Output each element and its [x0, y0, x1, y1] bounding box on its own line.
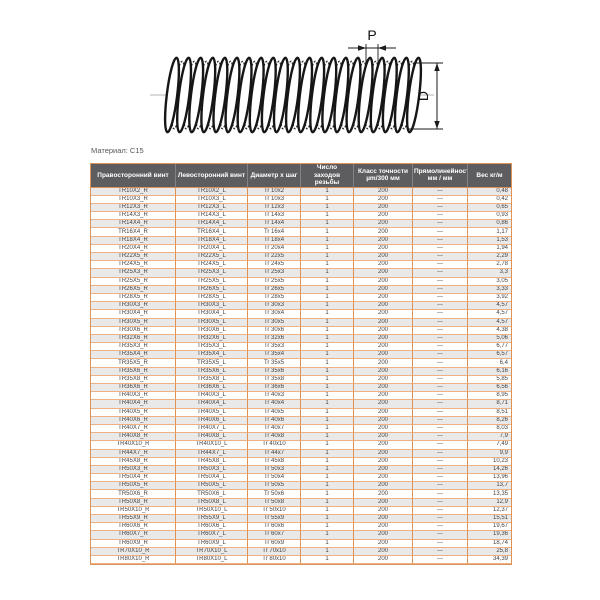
- table-cell: 1: [301, 278, 354, 286]
- table-cell: Tr 30x4: [248, 310, 301, 318]
- table-cell: 10,23: [468, 458, 511, 466]
- table-cell: TR10X3_R: [91, 196, 176, 204]
- table-cell: 1: [301, 327, 354, 335]
- table-cell: TR25X3_R: [91, 269, 176, 277]
- table-row: TR44X7_RTR44X7_LTr 44x71200---9,9: [91, 450, 511, 458]
- column-header: Класс точности µm/300 мм: [354, 164, 413, 188]
- table-cell: 200: [354, 433, 413, 441]
- table-cell: TR30X6_L: [176, 327, 248, 335]
- table-cell: 1: [301, 548, 354, 556]
- table-cell: 200: [354, 499, 413, 507]
- table-cell: 34,39: [468, 556, 511, 564]
- table-cell: ---: [413, 458, 468, 466]
- table-row: TR40X8_RTR40X8_LTr 40x81200---7,9: [91, 433, 511, 441]
- table-cell: 1: [301, 523, 354, 531]
- table-cell: ---: [413, 335, 468, 343]
- table-cell: Tr 35x4: [248, 351, 301, 359]
- table-cell: 0,93: [468, 212, 511, 220]
- table-cell: 1: [301, 458, 354, 466]
- table-cell: Tr 25x3: [248, 269, 301, 277]
- table-row: TR45X8_RTR45X8_LTr 45x81200---10,23: [91, 458, 511, 466]
- table-cell: 200: [354, 335, 413, 343]
- table-cell: ---: [413, 450, 468, 458]
- table-cell: Tr 50x8: [248, 499, 301, 507]
- table-cell: 1: [301, 310, 354, 318]
- table-cell: ---: [413, 245, 468, 253]
- table-cell: 200: [354, 458, 413, 466]
- table-cell: ---: [413, 237, 468, 245]
- table-cell: Tr 50x10: [248, 507, 301, 515]
- table-cell: 1: [301, 507, 354, 515]
- table-row: TR20X4_RTR20X4_LTr 20x41200---1,94: [91, 245, 511, 253]
- table-cell: Tr 40x6: [248, 417, 301, 425]
- table-cell: TR50X10_R: [91, 507, 176, 515]
- table-cell: 1,17: [468, 228, 511, 236]
- table-cell: TR55X9_R: [91, 515, 176, 523]
- table-cell: TR60X6_L: [176, 523, 248, 531]
- table-cell: 200: [354, 474, 413, 482]
- table-cell: 12,9: [468, 499, 511, 507]
- table-cell: Tr 40x4: [248, 400, 301, 408]
- table-cell: 200: [354, 384, 413, 392]
- pitch-arrow-right-icon: [378, 45, 386, 50]
- table-cell: 200: [354, 237, 413, 245]
- table-cell: 1: [301, 343, 354, 351]
- table-cell: TR50X10_L: [176, 507, 248, 515]
- table-cell: TR14X3_R: [91, 212, 176, 220]
- table-cell: 12,37: [468, 507, 511, 515]
- table-cell: Tr 40x8: [248, 433, 301, 441]
- table-row: TR35X6_RTR35X6_LTr 35x61200---6,16: [91, 368, 511, 376]
- table-cell: 0,48: [468, 188, 511, 196]
- diameter-arrow-bottom-icon: [434, 121, 439, 129]
- table-cell: 200: [354, 220, 413, 228]
- table-cell: Tr 60x9: [248, 540, 301, 548]
- table-cell: 1: [301, 376, 354, 384]
- table-cell: TR35X6_R: [91, 368, 176, 376]
- table-cell: TR40X8_R: [91, 433, 176, 441]
- table-row: TR32X6_RTR32X6_LTr 32x61200---5,06: [91, 335, 511, 343]
- table-cell: Tr 16x4: [248, 228, 301, 236]
- table-cell: Tr 40x10: [248, 441, 301, 449]
- table-cell: TR30X5_R: [91, 319, 176, 327]
- table-cell: 1: [301, 409, 354, 417]
- table-cell: 1: [301, 441, 354, 449]
- table-row: TR24X5_RTR24X5_LTr 24x51200---2,78: [91, 261, 511, 269]
- table-cell: 200: [354, 392, 413, 400]
- table-cell: ---: [413, 327, 468, 335]
- table-cell: 8,51: [468, 409, 511, 417]
- table-cell: Tr 30x5: [248, 319, 301, 327]
- table-cell: Tr 14x4: [248, 220, 301, 228]
- table-cell: TR60X6_R: [91, 523, 176, 531]
- table-cell: ---: [413, 376, 468, 384]
- table-cell: 1,53: [468, 237, 511, 245]
- table-cell: 1: [301, 359, 354, 367]
- table-cell: 200: [354, 294, 413, 302]
- table-cell: 1: [301, 261, 354, 269]
- table-cell: 200: [354, 286, 413, 294]
- table-cell: ---: [413, 425, 468, 433]
- table-cell: 200: [354, 531, 413, 539]
- table-cell: 1: [301, 228, 354, 236]
- table-cell: 1: [301, 515, 354, 523]
- table-cell: TR44X7_L: [176, 450, 248, 458]
- table-cell: ---: [413, 278, 468, 286]
- table-cell: ---: [413, 515, 468, 523]
- table-cell: 1: [301, 245, 354, 253]
- table-cell: 4,38: [468, 327, 511, 335]
- table-row: TR26X5_RTR26X5_LTr 26x51200---3,33: [91, 286, 511, 294]
- table-cell: Tr 20x4: [248, 245, 301, 253]
- table-cell: TR40X3_L: [176, 392, 248, 400]
- table-cell: TR20X4_L: [176, 245, 248, 253]
- table-row: TR80X10_RTR80X10_LTr 80x101200---34,39: [91, 556, 511, 564]
- table-cell: TR50X8_R: [91, 499, 176, 507]
- table-cell: Tr 50x5: [248, 482, 301, 490]
- table-cell: Tr 50x3: [248, 466, 301, 474]
- table-cell: 8,95: [468, 392, 511, 400]
- table-cell: 4,57: [468, 310, 511, 318]
- table-cell: Tr 50x4: [248, 474, 301, 482]
- material-note: Материал: C15: [91, 146, 144, 155]
- table-cell: 1: [301, 196, 354, 204]
- table-cell: 3,3: [468, 269, 511, 277]
- table-cell: 1: [301, 474, 354, 482]
- table-cell: TR32X6_L: [176, 335, 248, 343]
- table-cell: 3,05: [468, 278, 511, 286]
- table-cell: 6,16: [468, 368, 511, 376]
- table-cell: TR55X9_L: [176, 515, 248, 523]
- table-cell: ---: [413, 319, 468, 327]
- table-cell: 1: [301, 482, 354, 490]
- table-cell: Tr 30x3: [248, 302, 301, 310]
- table-cell: TR30X4_R: [91, 310, 176, 318]
- table-cell: ---: [413, 294, 468, 302]
- table-cell: TR22X5_L: [176, 253, 248, 261]
- table-cell: TR30X4_L: [176, 310, 248, 318]
- table-cell: TR70X10_L: [176, 548, 248, 556]
- table-cell: 9,9: [468, 450, 511, 458]
- table-cell: TR26X5_R: [91, 286, 176, 294]
- table-cell: Tr 30x6: [248, 327, 301, 335]
- table-cell: ---: [413, 368, 468, 376]
- table-cell: TR32X6_R: [91, 335, 176, 343]
- table-cell: Tr 24x5: [248, 261, 301, 269]
- table-cell: TR35X5_R: [91, 359, 176, 367]
- table-cell: ---: [413, 441, 468, 449]
- pitch-label: P: [367, 27, 376, 43]
- table-cell: Tr 36x6: [248, 384, 301, 392]
- table-row: TR35X3_RTR35X3_LTr 35x31200---6,77: [91, 343, 511, 351]
- table-cell: 1: [301, 499, 354, 507]
- table-cell: TR35X3_L: [176, 343, 248, 351]
- table-cell: TR35X4_R: [91, 351, 176, 359]
- table-cell: 1,94: [468, 245, 511, 253]
- table-cell: 25,8: [468, 548, 511, 556]
- table-cell: TR40X6_L: [176, 417, 248, 425]
- table-cell: 200: [354, 228, 413, 236]
- table-cell: TR50X6_R: [91, 490, 176, 498]
- table-cell: ---: [413, 212, 468, 220]
- table-cell: TR28X5_L: [176, 294, 248, 302]
- table-row: TR12X3_RTR12X3_LTr 12x31200---0,65: [91, 204, 511, 212]
- table-cell: 8,26: [468, 417, 511, 425]
- table-cell: TR25X5_L: [176, 278, 248, 286]
- table-cell: 13,96: [468, 474, 511, 482]
- table-cell: Tr 35x5: [248, 359, 301, 367]
- table-cell: 19,67: [468, 523, 511, 531]
- table-row: TR25X5_RTR25X5_LTr 25x51200---3,05: [91, 278, 511, 286]
- table-cell: 8,03: [468, 425, 511, 433]
- table-cell: ---: [413, 540, 468, 548]
- table-cell: 1: [301, 417, 354, 425]
- table-row: TR50X10_RTR50X10_LTr 50x101200---12,37: [91, 507, 511, 515]
- column-header: Прямолинейность мм / мм: [413, 164, 468, 188]
- table-cell: 200: [354, 310, 413, 318]
- table-cell: TR12X3_R: [91, 204, 176, 212]
- table-cell: Tr 12x3: [248, 204, 301, 212]
- column-header: Число заходов резьбы: [301, 164, 354, 188]
- table-cell: 1: [301, 286, 354, 294]
- table-cell: TR50X5_R: [91, 482, 176, 490]
- table-cell: TR14X3_L: [176, 212, 248, 220]
- table-cell: 1: [301, 335, 354, 343]
- table-cell: 3,33: [468, 286, 511, 294]
- table-cell: TR40X3_R: [91, 392, 176, 400]
- table-cell: TR35X5_L: [176, 359, 248, 367]
- table-cell: 200: [354, 400, 413, 408]
- table-cell: ---: [413, 400, 468, 408]
- table-cell: 200: [354, 450, 413, 458]
- table-row: TR60X6_RTR60X6_LTr 60x61200---19,67: [91, 523, 511, 531]
- column-header: Правосторонний винт: [91, 164, 176, 188]
- table-cell: TR40X4_R: [91, 400, 176, 408]
- table-cell: TR35X6_L: [176, 368, 248, 376]
- table-cell: ---: [413, 310, 468, 318]
- table-cell: ---: [413, 188, 468, 196]
- table-row: TR30X5_RTR30X5_LTr 30x51200---4,57: [91, 319, 511, 327]
- table-cell: Tr 44x7: [248, 450, 301, 458]
- table-row: TR60X9_RTR60X9_LTr 60x91200---18,74: [91, 540, 511, 548]
- table-cell: ---: [413, 343, 468, 351]
- table-cell: 6,4: [468, 359, 511, 367]
- table-row: TR30X4_RTR30X4_LTr 30x41200---4,57: [91, 310, 511, 318]
- table-cell: 14,26: [468, 466, 511, 474]
- table-cell: TR40X5_L: [176, 409, 248, 417]
- table-cell: ---: [413, 204, 468, 212]
- thread-size-table-wrap: Правосторонний винтЛевосторонний винтДиа…: [90, 163, 510, 565]
- table-cell: 7,49: [468, 441, 511, 449]
- table-cell: 200: [354, 343, 413, 351]
- table-cell: 200: [354, 507, 413, 515]
- table-cell: ---: [413, 482, 468, 490]
- table-cell: ---: [413, 474, 468, 482]
- table-cell: ---: [413, 384, 468, 392]
- table-cell: 200: [354, 278, 413, 286]
- table-cell: TR60X7_R: [91, 531, 176, 539]
- table-cell: 1: [301, 253, 354, 261]
- table-cell: 1: [301, 269, 354, 277]
- table-cell: TR18X4_R: [91, 237, 176, 245]
- table-row: TR35X8_RTR35X8_LTr 35x81200---5,85: [91, 376, 511, 384]
- table-cell: TR50X4_L: [176, 474, 248, 482]
- table-cell: TR18X4_L: [176, 237, 248, 245]
- table-cell: 5,06: [468, 335, 511, 343]
- table-cell: 0,65: [468, 204, 511, 212]
- thread-drawing: P D: [0, 0, 600, 160]
- table-cell: 1: [301, 531, 354, 539]
- table-cell: TR60X9_L: [176, 540, 248, 548]
- table-cell: TR25X5_R: [91, 278, 176, 286]
- table-cell: TR40X6_R: [91, 417, 176, 425]
- table-cell: TR70X10_R: [91, 548, 176, 556]
- table-cell: 200: [354, 196, 413, 204]
- table-cell: 200: [354, 368, 413, 376]
- table-cell: ---: [413, 548, 468, 556]
- column-header: Левосторонний винт: [176, 164, 248, 188]
- table-row: TR35X4_RTR35X4_LTr 35x41200---6,57: [91, 351, 511, 359]
- table-cell: Tr 26x5: [248, 286, 301, 294]
- table-row: TR14X4_RTR14X4_LTr 14x41200---0,86: [91, 220, 511, 228]
- table-cell: 13,35: [468, 490, 511, 498]
- table-row: TR55X9_RTR55X9_LTr 55x91200---15,51: [91, 515, 511, 523]
- table-cell: TR45X8_L: [176, 458, 248, 466]
- table-cell: TR40X4_L: [176, 400, 248, 408]
- table-cell: ---: [413, 392, 468, 400]
- table-cell: TR40X7_L: [176, 425, 248, 433]
- table-cell: Tr 14x3: [248, 212, 301, 220]
- table-cell: 2,78: [468, 261, 511, 269]
- table-cell: TR40X8_L: [176, 433, 248, 441]
- table-cell: TR45X8_R: [91, 458, 176, 466]
- table-row: TR70X10_RTR70X10_LTr 70x101200---25,8: [91, 548, 511, 556]
- table-cell: TR30X5_L: [176, 319, 248, 327]
- table-cell: 6,57: [468, 351, 511, 359]
- diameter-label: D: [415, 91, 431, 101]
- table-cell: 19,36: [468, 531, 511, 539]
- table-cell: 1: [301, 490, 354, 498]
- table-cell: 0,86: [468, 220, 511, 228]
- table-body: TR10X2_RTR10X2_LTr 10x21200---0,48TR10X3…: [91, 188, 511, 565]
- table-cell: 1: [301, 400, 354, 408]
- table-cell: TR60X9_R: [91, 540, 176, 548]
- table-cell: Tr 18x4: [248, 237, 301, 245]
- table-cell: TR50X6_L: [176, 490, 248, 498]
- table-row: TR10X2_RTR10X2_LTr 10x21200---0,48: [91, 188, 511, 196]
- table-row: TR14X3_RTR14X3_LTr 14x31200---0,93: [91, 212, 511, 220]
- table-cell: ---: [413, 417, 468, 425]
- table-cell: ---: [413, 499, 468, 507]
- table-row: TR10X3_RTR10X3_LTr 10x31200---0,42: [91, 196, 511, 204]
- table-cell: 4,57: [468, 319, 511, 327]
- table-cell: TR28X5_R: [91, 294, 176, 302]
- table-cell: 1: [301, 237, 354, 245]
- table-row: TR40X6_RTR40X6_LTr 40x61200---8,26: [91, 417, 511, 425]
- table-cell: ---: [413, 196, 468, 204]
- table-cell: TR50X5_L: [176, 482, 248, 490]
- table-cell: ---: [413, 507, 468, 515]
- table-cell: 200: [354, 359, 413, 367]
- table-cell: 13,7: [468, 482, 511, 490]
- thread-profile: [162, 57, 423, 133]
- table-row: TR50X6_RTR50X6_LTr 50x61200---13,35: [91, 490, 511, 498]
- table-row: TR40X4_RTR40X4_LTr 40x41200---8,71: [91, 400, 511, 408]
- table-row: TR25X3_RTR25X3_LTr 25x31200---3,3: [91, 269, 511, 277]
- table-cell: Tr 45x8: [248, 458, 301, 466]
- table-cell: TR40X5_R: [91, 409, 176, 417]
- table-row: TR50X3_RTR50X3_LTr 50x31200---14,26: [91, 466, 511, 474]
- table-cell: TR80X10_R: [91, 556, 176, 564]
- table-cell: 200: [354, 319, 413, 327]
- table-cell: 1: [301, 368, 354, 376]
- table-row: TR35X5_RTR35X5_LTr 35x51200---6,4: [91, 359, 511, 367]
- table-cell: 200: [354, 548, 413, 556]
- table-cell: 200: [354, 466, 413, 474]
- table-row: TR28X5_RTR28X5_LTr 28x51200---3,92: [91, 294, 511, 302]
- table-cell: TR50X8_L: [176, 499, 248, 507]
- table-cell: 200: [354, 523, 413, 531]
- table-cell: 200: [354, 441, 413, 449]
- table-cell: ---: [413, 351, 468, 359]
- table-cell: 200: [354, 556, 413, 564]
- table-cell: TR14X4_R: [91, 220, 176, 228]
- table-cell: Tr 32x6: [248, 335, 301, 343]
- table-cell: Tr 35x6: [248, 368, 301, 376]
- table-cell: 1: [301, 220, 354, 228]
- column-header: Диаметр х шаг: [248, 164, 301, 188]
- table-cell: TR35X4_L: [176, 351, 248, 359]
- table-cell: Tr 35x8: [248, 376, 301, 384]
- table-cell: ---: [413, 409, 468, 417]
- table-cell: TR35X8_R: [91, 376, 176, 384]
- table-cell: 1: [301, 450, 354, 458]
- table-cell: 1: [301, 188, 354, 196]
- table-cell: TR10X3_L: [176, 196, 248, 204]
- table-row: TR18X4_RTR18X4_LTr 18x41200---1,53: [91, 237, 511, 245]
- table-cell: ---: [413, 286, 468, 294]
- table-cell: ---: [413, 261, 468, 269]
- table-cell: 200: [354, 515, 413, 523]
- table-cell: TR10X2_L: [176, 188, 248, 196]
- table-cell: ---: [413, 269, 468, 277]
- table-row: TR30X3_RTR30X3_LTr 30x31200---4,57: [91, 302, 511, 310]
- table-cell: 1: [301, 425, 354, 433]
- table-cell: 3,92: [468, 294, 511, 302]
- table-cell: 200: [354, 302, 413, 310]
- table-cell: Tr 80x10: [248, 556, 301, 564]
- table-cell: TR50X3_R: [91, 466, 176, 474]
- table-cell: TR35X3_R: [91, 343, 176, 351]
- table-cell: Tr 50x6: [248, 490, 301, 498]
- table-cell: ---: [413, 302, 468, 310]
- table-cell: 5,85: [468, 376, 511, 384]
- table-cell: 200: [354, 269, 413, 277]
- table-cell: TR35X8_L: [176, 376, 248, 384]
- table-cell: Tr 55x9: [248, 515, 301, 523]
- table-cell: TR80X10_L: [176, 556, 248, 564]
- table-cell: 1: [301, 384, 354, 392]
- table-cell: 1: [301, 540, 354, 548]
- table-cell: ---: [413, 220, 468, 228]
- table-cell: 2,29: [468, 253, 511, 261]
- table-cell: ---: [413, 531, 468, 539]
- table-row: TR50X5_RTR50X5_LTr 50x51200---13,7: [91, 482, 511, 490]
- table-cell: TR36X6_L: [176, 384, 248, 392]
- table-cell: ---: [413, 466, 468, 474]
- table-cell: Tr 70x10: [248, 548, 301, 556]
- datasheet-page: P D Материал: C15 Правосторонний винтЛев…: [0, 0, 600, 600]
